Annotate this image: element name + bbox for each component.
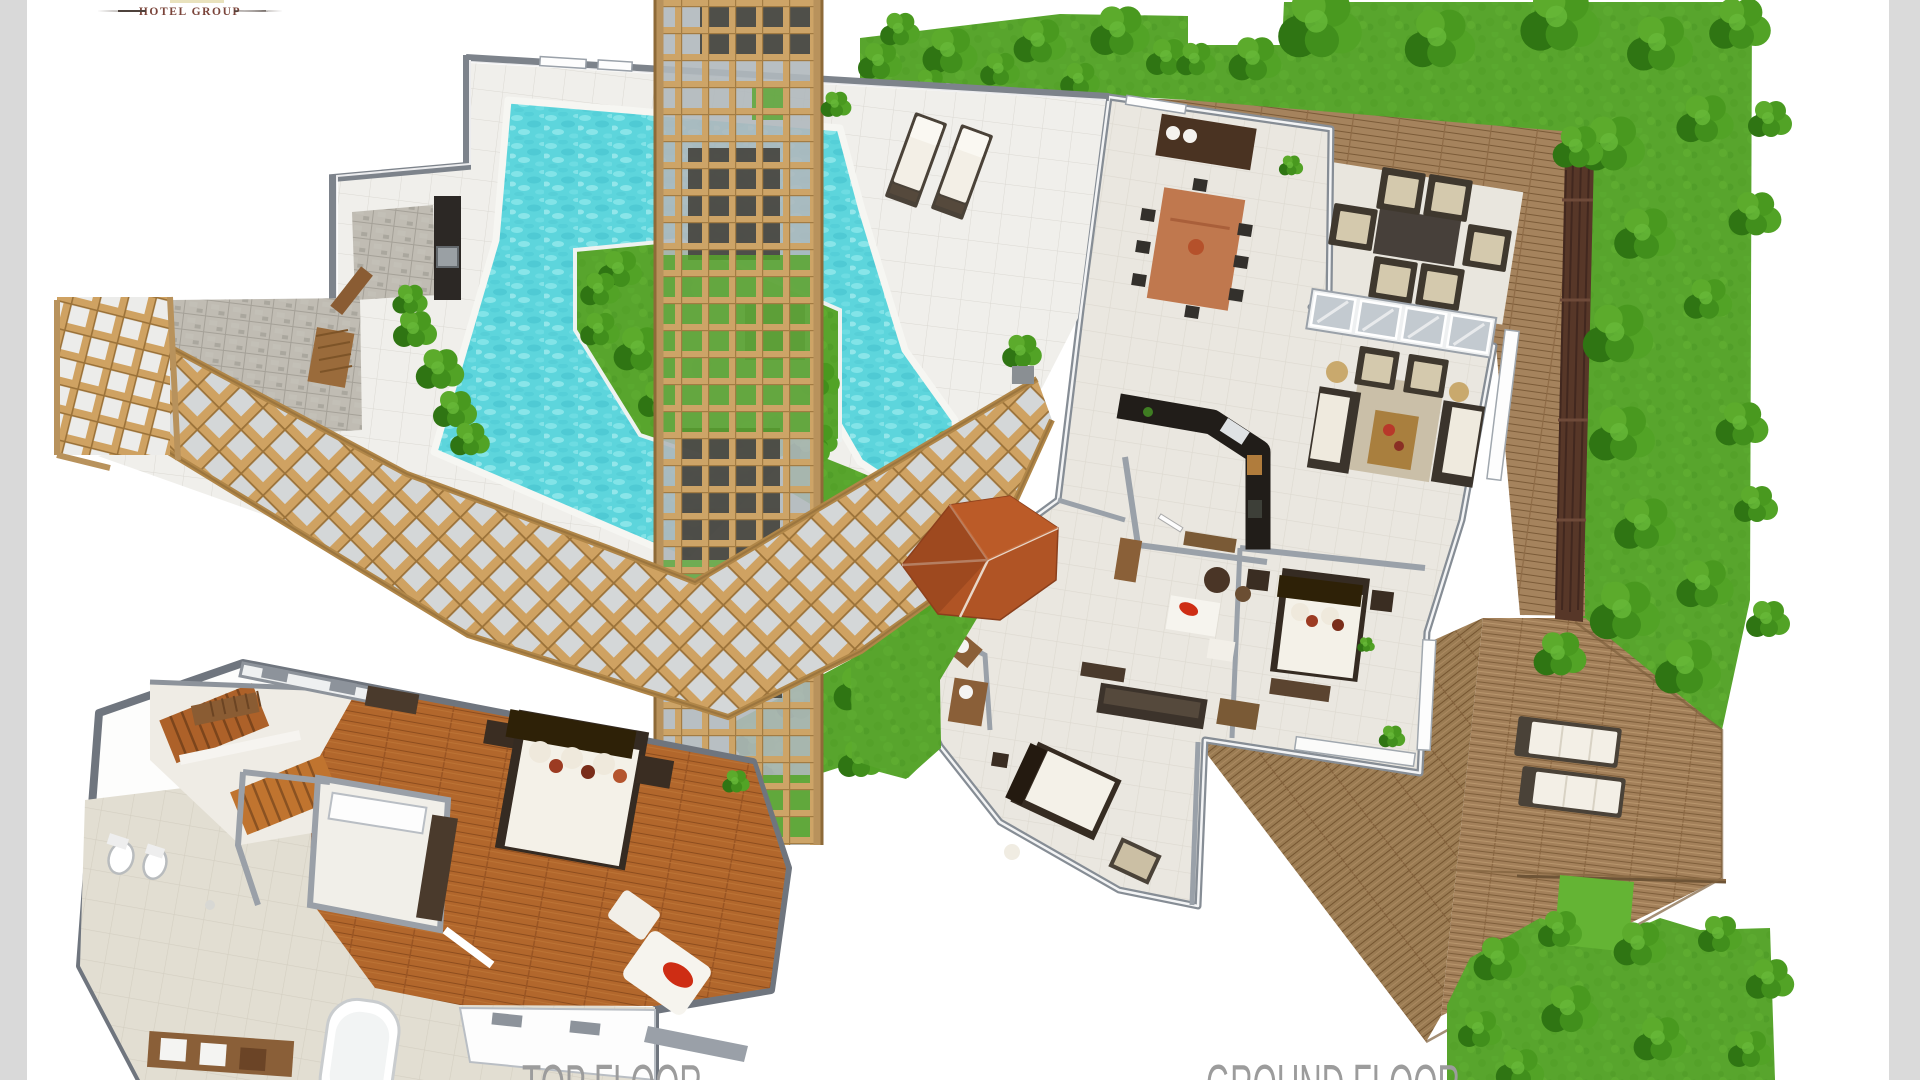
svg-text:GROUND FLOOR: GROUND FLOOR bbox=[1206, 1053, 1460, 1080]
svg-text:TOP FLOOR: TOP FLOOR bbox=[522, 1053, 702, 1080]
svg-text:HOTEL GROUP: HOTEL GROUP bbox=[139, 6, 241, 18]
